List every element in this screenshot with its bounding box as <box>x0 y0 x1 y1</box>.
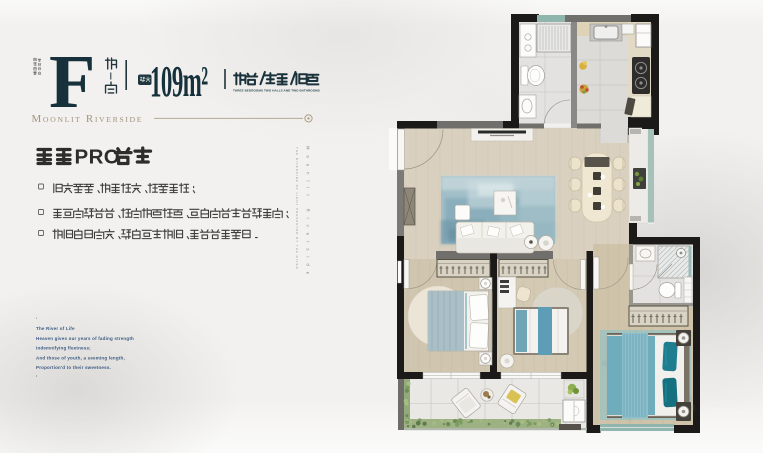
svg-text:THE RIVERSIDE OF LIGHT PRESENT: THE RIVERSIDE OF LIGHT PRESENTED BY THE … <box>295 147 299 270</box>
svg-text:‘: ‘ <box>36 317 37 322</box>
svg-text:Moonlit Riverside: Moonlit Riverside <box>306 146 311 280</box>
svg-text:The River of Life: The River of Life <box>36 326 75 331</box>
svg-text:MOONLIT RIVERSIDE: MOONLIT RIVERSIDE <box>32 113 144 125</box>
svg-text:109m²: 109m² <box>150 57 208 106</box>
svg-text:’: ’ <box>36 375 37 380</box>
svg-text:Proportion'd to their sweetnes: Proportion'd to their sweetness. <box>36 365 111 370</box>
svg-text:THREE BEDROOMS TWO HALLS AND T: THREE BEDROOMS TWO HALLS AND TWO BATHROO… <box>233 89 320 93</box>
svg-text:Heaven gives our years of fadi: Heaven gives our years of fading strengt… <box>36 336 134 341</box>
svg-text:PRO: PRO <box>75 146 121 169</box>
svg-text:F: F <box>49 40 95 124</box>
svg-text:And those of youth, a seeming: And those of youth, a seeming length, <box>36 355 125 360</box>
svg-text:Indemnifying fleetness;: Indemnifying fleetness; <box>36 346 91 351</box>
